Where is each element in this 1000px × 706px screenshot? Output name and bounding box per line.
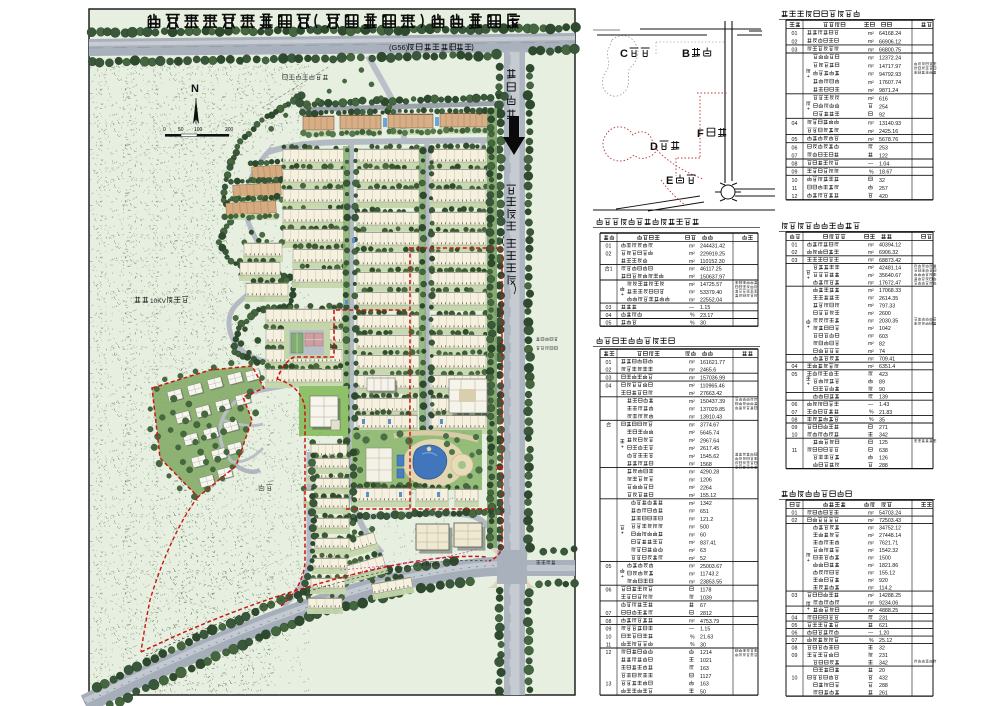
- svg-text:30: 30: [700, 642, 706, 648]
- svg-text:—: —: [689, 305, 695, 311]
- svg-text:m²: m²: [689, 454, 695, 460]
- svg-text:m²: m²: [868, 258, 874, 264]
- svg-text:17672.47: 17672.47: [879, 281, 901, 287]
- svg-text:m²: m²: [689, 579, 695, 585]
- svg-text:155.12: 155.12: [879, 571, 895, 577]
- svg-text:1178: 1178: [700, 587, 711, 593]
- svg-text:1.15: 1.15: [700, 305, 710, 311]
- svg-text:10: 10: [606, 635, 612, 641]
- svg-text:%: %: [869, 417, 874, 423]
- svg-text:m²: m²: [689, 446, 695, 452]
- svg-text:m²: m²: [689, 477, 695, 483]
- svg-text:m²: m²: [868, 64, 874, 70]
- svg-text:229919.25: 229919.25: [700, 251, 725, 257]
- svg-text:%: %: [690, 320, 695, 326]
- svg-text:342: 342: [879, 433, 888, 439]
- svg-text:05: 05: [606, 564, 612, 570]
- svg-text:163: 163: [700, 666, 709, 672]
- svg-text:+: +: [621, 531, 624, 537]
- svg-text:04: 04: [792, 121, 798, 127]
- svg-text:m²: m²: [868, 39, 874, 45]
- svg-text:04: 04: [792, 364, 798, 370]
- svg-text:m²: m²: [689, 297, 695, 303]
- svg-text:—: —: [689, 626, 695, 632]
- svg-text:7621.71: 7621.71: [879, 541, 898, 547]
- svg-text:09: 09: [606, 627, 612, 633]
- svg-text:500: 500: [700, 525, 709, 531]
- svg-text:m²: m²: [868, 129, 874, 135]
- svg-text:m²: m²: [689, 469, 695, 475]
- svg-text:12: 12: [606, 650, 612, 656]
- svg-text:m²: m²: [868, 55, 874, 61]
- svg-text:14725.57: 14725.57: [700, 282, 722, 288]
- svg-text:01: 01: [606, 360, 612, 366]
- svg-text:m²: m²: [868, 265, 874, 271]
- svg-text:1.04: 1.04: [879, 162, 889, 168]
- svg-text:m²: m²: [868, 296, 874, 302]
- svg-text:+: +: [807, 74, 810, 80]
- svg-text:1.20: 1.20: [879, 631, 889, 637]
- svg-text:—: —: [868, 402, 874, 408]
- svg-text:01: 01: [792, 511, 798, 517]
- svg-text:m²: m²: [868, 96, 874, 102]
- svg-text:m²: m²: [689, 438, 695, 444]
- svg-text:m²: m²: [689, 462, 695, 468]
- svg-text:40394.12: 40394.12: [879, 243, 901, 249]
- svg-text:09: 09: [792, 170, 798, 176]
- svg-text:14288.25: 14288.25: [879, 593, 901, 599]
- svg-text:11: 11: [792, 186, 798, 192]
- svg-text:155.12: 155.12: [700, 493, 716, 499]
- svg-text:06: 06: [792, 145, 798, 151]
- svg-text:m²: m²: [868, 533, 874, 539]
- svg-text:08: 08: [792, 646, 798, 652]
- svg-text:161621.77: 161621.77: [700, 360, 725, 366]
- svg-text:46117.25: 46117.25: [700, 267, 722, 273]
- svg-text:2617.45: 2617.45: [700, 446, 719, 452]
- svg-text:94792.93: 94792.93: [879, 72, 901, 78]
- svg-text:%: %: [690, 642, 695, 648]
- svg-text:07: 07: [606, 611, 612, 617]
- svg-text:m²: m²: [868, 518, 874, 524]
- svg-text:342: 342: [879, 661, 888, 667]
- svg-text:m²: m²: [689, 619, 695, 625]
- svg-text:m²: m²: [689, 415, 695, 421]
- svg-text:288: 288: [879, 683, 888, 689]
- svg-text:+: +: [807, 607, 810, 613]
- svg-text:13140.93: 13140.93: [879, 121, 901, 127]
- svg-text:+: +: [807, 558, 810, 564]
- svg-text:03: 03: [606, 305, 612, 311]
- svg-text:m²: m²: [689, 422, 695, 428]
- svg-text:m²: m²: [689, 407, 695, 413]
- svg-text:03: 03: [792, 258, 798, 264]
- svg-text:m²: m²: [868, 242, 874, 248]
- svg-text:m²: m²: [868, 600, 874, 606]
- svg-text:231: 231: [879, 653, 888, 659]
- svg-text:m²: m²: [868, 510, 874, 516]
- svg-text:25.12: 25.12: [879, 638, 892, 644]
- svg-text:150437.39: 150437.39: [700, 399, 725, 405]
- svg-text:m²: m²: [868, 311, 874, 317]
- svg-text:32: 32: [879, 178, 885, 184]
- svg-text:52: 52: [700, 556, 706, 562]
- svg-text:1500: 1500: [879, 556, 891, 562]
- svg-text:110965.46: 110965.46: [700, 383, 725, 389]
- svg-text:1821.86: 1821.86: [879, 563, 898, 569]
- svg-text:10: 10: [792, 433, 798, 439]
- svg-text:m²: m²: [689, 267, 695, 273]
- svg-text:m²: m²: [868, 555, 874, 561]
- svg-text:110152.30: 110152.30: [700, 259, 725, 265]
- svg-text:157036.99: 157036.99: [700, 375, 725, 381]
- svg-text:m²: m²: [689, 572, 695, 578]
- svg-text:54703.24: 54703.24: [879, 511, 901, 517]
- svg-text:02: 02: [792, 518, 798, 524]
- svg-text:271: 271: [879, 425, 888, 431]
- svg-text:m²: m²: [868, 326, 874, 332]
- svg-text:709.41: 709.41: [879, 357, 895, 363]
- svg-text:1545.62: 1545.62: [700, 454, 719, 460]
- svg-text:1568: 1568: [700, 462, 712, 468]
- svg-text:126: 126: [879, 455, 888, 461]
- svg-text:m²: m²: [689, 501, 695, 507]
- svg-text:06: 06: [606, 587, 612, 593]
- svg-text:72503.43: 72503.43: [879, 518, 901, 524]
- svg-text:60: 60: [700, 532, 706, 538]
- svg-text:6906.32: 6906.32: [879, 250, 898, 256]
- svg-text:02: 02: [606, 251, 612, 257]
- svg-text:603: 603: [879, 334, 888, 340]
- svg-text:4290.28: 4290.28: [700, 470, 719, 476]
- svg-text:2030.35: 2030.35: [879, 319, 898, 325]
- svg-text:m²: m²: [868, 137, 874, 143]
- svg-text:07: 07: [792, 153, 798, 159]
- svg-text:1127: 1127: [700, 674, 711, 680]
- svg-text:E: E: [666, 175, 673, 187]
- svg-text:02: 02: [606, 368, 612, 374]
- svg-text:64168.24: 64168.24: [879, 31, 901, 37]
- svg-text:20: 20: [879, 668, 885, 674]
- svg-text:2967.64: 2967.64: [700, 438, 719, 444]
- svg-text:m²: m²: [689, 243, 695, 249]
- svg-text:122: 122: [879, 153, 888, 159]
- svg-text:+: +: [807, 275, 810, 281]
- svg-text:08: 08: [792, 162, 798, 168]
- svg-text:163: 163: [700, 682, 709, 688]
- svg-text:m²: m²: [868, 288, 874, 294]
- svg-text:08: 08: [792, 417, 798, 423]
- svg-text:23853.55: 23853.55: [700, 580, 722, 586]
- svg-text:42481.14: 42481.14: [879, 265, 901, 271]
- svg-text:B: B: [682, 48, 690, 60]
- svg-text:m²: m²: [868, 250, 874, 256]
- svg-text:m²: m²: [689, 548, 695, 554]
- svg-text:66906.12: 66906.12: [879, 39, 901, 45]
- svg-text:74: 74: [879, 349, 885, 355]
- svg-text:53379.40: 53379.40: [700, 290, 722, 296]
- svg-text:1039: 1039: [700, 595, 712, 601]
- svg-text:2264: 2264: [700, 485, 712, 491]
- svg-text:2614.35: 2614.35: [879, 296, 898, 302]
- svg-text:m²: m²: [868, 273, 874, 279]
- svg-text:m²: m²: [868, 525, 874, 531]
- svg-text:1.43: 1.43: [879, 402, 889, 408]
- svg-text:2425.16: 2425.16: [879, 129, 898, 135]
- svg-text:12372.24: 12372.24: [879, 56, 901, 62]
- svg-text:%: %: [869, 170, 874, 176]
- svg-text:82: 82: [879, 341, 885, 347]
- svg-text:m²: m²: [689, 274, 695, 280]
- svg-text:11: 11: [792, 448, 798, 454]
- svg-text:m²: m²: [689, 391, 695, 397]
- svg-text:92: 92: [879, 113, 885, 119]
- svg-text:m²: m²: [689, 251, 695, 257]
- svg-text:1.15: 1.15: [700, 627, 710, 633]
- svg-text:21.63: 21.63: [700, 635, 713, 641]
- svg-text:121.2: 121.2: [700, 517, 713, 523]
- svg-text:5678.76: 5678.76: [879, 137, 898, 143]
- svg-text:m²: m²: [689, 399, 695, 405]
- svg-text:+: +: [807, 107, 810, 113]
- svg-text:m²: m²: [868, 341, 874, 347]
- svg-text:m²: m²: [868, 578, 874, 584]
- svg-text:m²: m²: [689, 290, 695, 296]
- svg-text:m²: m²: [868, 593, 874, 599]
- svg-text:616: 616: [879, 96, 888, 102]
- svg-text:m²: m²: [868, 608, 874, 614]
- svg-text:m²: m²: [689, 383, 695, 389]
- svg-text:11: 11: [606, 642, 612, 648]
- svg-text:08: 08: [606, 619, 612, 625]
- svg-text:m²: m²: [689, 564, 695, 570]
- svg-text:m²: m²: [868, 31, 874, 37]
- svg-text:150637.97: 150637.97: [700, 274, 725, 280]
- svg-text:m²: m²: [689, 493, 695, 499]
- svg-text:89: 89: [879, 379, 885, 385]
- svg-text:—: —: [868, 161, 874, 167]
- svg-text:%: %: [690, 634, 695, 640]
- svg-text:27448.14: 27448.14: [879, 533, 901, 539]
- svg-text:2812: 2812: [700, 611, 712, 617]
- svg-text:07: 07: [792, 410, 798, 416]
- svg-text:1214: 1214: [700, 650, 712, 656]
- svg-text:+: +: [621, 292, 624, 298]
- svg-text:244431.42: 244431.42: [700, 244, 725, 250]
- svg-text:114.2: 114.2: [879, 586, 892, 592]
- svg-text:02: 02: [792, 39, 798, 45]
- svg-text:05: 05: [792, 372, 798, 378]
- svg-text:13: 13: [606, 682, 612, 688]
- svg-text:137029.85: 137029.85: [700, 407, 725, 413]
- svg-text:+: +: [807, 325, 810, 331]
- svg-text:合: 合: [606, 421, 612, 429]
- svg-text:%: %: [690, 313, 695, 319]
- svg-text:432: 432: [879, 676, 888, 682]
- svg-text:06: 06: [792, 402, 798, 408]
- svg-text:231: 231: [879, 616, 888, 622]
- svg-text:%: %: [869, 638, 874, 644]
- svg-text:63: 63: [700, 548, 706, 554]
- svg-text:1206: 1206: [700, 478, 712, 484]
- svg-text:01: 01: [792, 243, 798, 249]
- svg-text:m²: m²: [689, 375, 695, 381]
- svg-text:m²: m²: [868, 280, 874, 286]
- svg-text:m²: m²: [868, 540, 874, 546]
- svg-text:254: 254: [879, 105, 888, 111]
- svg-text:m²: m²: [868, 563, 874, 569]
- svg-text:1042: 1042: [879, 326, 891, 332]
- svg-text:2600: 2600: [879, 311, 891, 317]
- svg-text:13910.43: 13910.43: [700, 415, 722, 421]
- svg-text:05: 05: [792, 137, 798, 143]
- svg-text:11743.2: 11743.2: [700, 572, 719, 578]
- svg-text:23.17: 23.17: [700, 313, 713, 319]
- svg-text:797.33: 797.33: [879, 303, 895, 309]
- svg-text:m²: m²: [689, 517, 695, 523]
- svg-text:+: +: [807, 382, 810, 388]
- svg-text:+: +: [621, 444, 624, 450]
- svg-text:04: 04: [606, 313, 612, 319]
- svg-text:35: 35: [879, 417, 885, 423]
- svg-text:m²: m²: [689, 259, 695, 265]
- svg-text:m²: m²: [689, 367, 695, 373]
- svg-text:m²: m²: [868, 303, 874, 309]
- svg-text:4753.79: 4753.79: [700, 619, 719, 625]
- svg-text:m²: m²: [868, 356, 874, 362]
- svg-text:m²: m²: [868, 334, 874, 340]
- svg-text:m²: m²: [868, 47, 874, 53]
- svg-text:04: 04: [792, 616, 798, 622]
- svg-text:m²: m²: [868, 72, 874, 78]
- svg-text:9871.24: 9871.24: [879, 88, 898, 94]
- svg-text:22552.04: 22552.04: [700, 298, 722, 304]
- svg-text:125: 125: [879, 440, 888, 446]
- svg-text:+: +: [621, 574, 624, 580]
- svg-text:10: 10: [792, 178, 798, 184]
- svg-text:67: 67: [700, 603, 706, 609]
- svg-text:09: 09: [792, 653, 798, 659]
- svg-text:9234.06: 9234.06: [879, 601, 898, 607]
- svg-text:14717.97: 14717.97: [879, 64, 901, 70]
- svg-text:3774.67: 3774.67: [700, 423, 719, 429]
- svg-text:m²: m²: [868, 80, 874, 86]
- svg-text:01: 01: [606, 244, 612, 250]
- svg-text:253: 253: [879, 145, 888, 151]
- svg-text:m²: m²: [868, 318, 874, 324]
- svg-text:621: 621: [879, 623, 888, 629]
- svg-text:m²: m²: [868, 570, 874, 576]
- svg-text:638: 638: [879, 448, 888, 454]
- svg-text:257: 257: [879, 186, 888, 192]
- svg-text:25003.67: 25003.67: [700, 564, 722, 570]
- svg-text:D: D: [650, 141, 658, 153]
- svg-text:1342: 1342: [700, 501, 712, 507]
- svg-text:03: 03: [606, 375, 612, 381]
- svg-text:07: 07: [792, 638, 798, 644]
- svg-text:m²: m²: [689, 282, 695, 288]
- svg-text:06: 06: [792, 631, 798, 637]
- svg-text:m²: m²: [689, 524, 695, 530]
- svg-text:90: 90: [879, 387, 885, 393]
- svg-text:04: 04: [606, 383, 612, 389]
- svg-text:C: C: [620, 48, 628, 60]
- svg-text:02: 02: [792, 250, 798, 256]
- svg-text:21.83: 21.83: [879, 410, 892, 416]
- svg-text:m²: m²: [689, 532, 695, 538]
- svg-text:1542.32: 1542.32: [879, 548, 898, 554]
- svg-text:m²: m²: [689, 360, 695, 366]
- svg-text:18.67: 18.67: [879, 170, 892, 176]
- svg-text:920: 920: [879, 578, 888, 584]
- svg-text:6351.4: 6351.4: [879, 364, 895, 370]
- svg-text:03: 03: [792, 593, 798, 599]
- svg-text:2465.6: 2465.6: [700, 368, 716, 374]
- svg-text:09: 09: [792, 425, 798, 431]
- svg-text:1021: 1021: [700, 658, 712, 664]
- svg-text:合1: 合1: [604, 265, 612, 273]
- svg-text:10: 10: [792, 676, 798, 682]
- svg-text:m²: m²: [868, 585, 874, 591]
- svg-text:m²: m²: [689, 556, 695, 562]
- svg-text:17068.33: 17068.33: [879, 288, 901, 294]
- svg-text:651: 651: [700, 509, 709, 515]
- svg-text:m²: m²: [868, 349, 874, 355]
- svg-text:m²: m²: [689, 430, 695, 436]
- svg-text:m²: m²: [689, 485, 695, 491]
- svg-text:4888.25: 4888.25: [879, 608, 898, 614]
- svg-text:01: 01: [792, 31, 798, 37]
- svg-text:m²: m²: [868, 364, 874, 370]
- svg-text:423: 423: [879, 372, 888, 378]
- svg-text:837.41: 837.41: [700, 540, 716, 546]
- svg-text:—: —: [868, 630, 874, 636]
- svg-text:35640.67: 35640.67: [879, 273, 901, 279]
- svg-text:m²: m²: [689, 540, 695, 546]
- svg-text:17607.74: 17607.74: [879, 80, 901, 86]
- svg-text:m²: m²: [868, 121, 874, 127]
- svg-text:5645.74: 5645.74: [700, 430, 719, 436]
- svg-text:05: 05: [792, 623, 798, 629]
- svg-text:m²: m²: [689, 509, 695, 515]
- svg-text:%: %: [869, 410, 874, 416]
- svg-text:68873.42: 68873.42: [879, 258, 901, 264]
- svg-text:32: 32: [879, 646, 885, 652]
- svg-text:m²: m²: [868, 548, 874, 554]
- svg-text:27663.42: 27663.42: [700, 391, 722, 397]
- svg-text:34752.12: 34752.12: [879, 526, 901, 532]
- svg-text:139: 139: [879, 395, 888, 401]
- svg-text:F: F: [697, 128, 704, 140]
- svg-text:m²: m²: [868, 88, 874, 94]
